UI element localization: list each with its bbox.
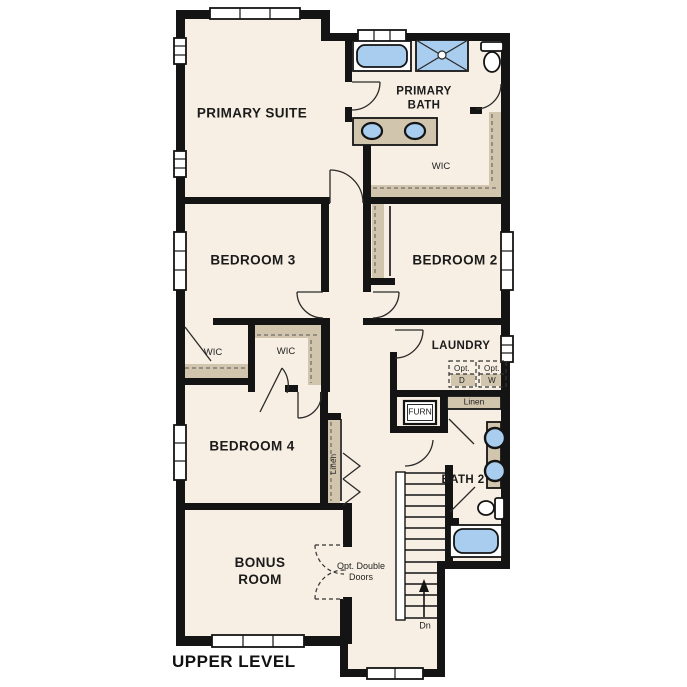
room-label-primary-wic: WIC [432, 161, 450, 173]
annotation-stairs-down: Dn [419, 620, 431, 631]
annotation-linen-hall: Linen [464, 397, 485, 408]
bath2-bathtub [450, 525, 502, 557]
room-label-bath-2: BATH 2 [440, 473, 486, 487]
annotation-opt-washer: Opt. [484, 364, 500, 374]
primary-toilet [481, 42, 503, 72]
primary-bathtub [353, 41, 411, 71]
annotation-opt-dryer: Opt. [454, 364, 470, 374]
room-label-laundry: LAUNDRY [432, 339, 491, 353]
annotation-linen-closet: Linen [329, 454, 339, 475]
room-label-wic-left: WIC [204, 347, 222, 359]
floor-plan: PRIMARY SUITE PRIMARY BATH WIC BEDROOM 3… [0, 0, 687, 687]
room-label-bedroom-3: BEDROOM 3 [210, 253, 295, 270]
annotation-opt-double-doors: Opt. Double Doors [335, 561, 387, 584]
room-label-wic-right: WIC [277, 346, 295, 358]
primary-vanity-sinks [353, 118, 437, 145]
annotation-furnace: FURN [408, 407, 432, 418]
room-label-bedroom-4: BEDROOM 4 [209, 439, 294, 456]
plan-title: UPPER LEVEL [172, 652, 296, 672]
floor-plan-drawing [0, 0, 687, 687]
annotation-dryer-letter: D [459, 376, 465, 386]
primary-shower [416, 40, 468, 71]
room-label-bedroom-2: BEDROOM 2 [412, 253, 497, 270]
annotation-washer-letter: W [488, 376, 496, 386]
room-label-primary-suite: PRIMARY SUITE [192, 106, 312, 123]
room-label-primary-bath: PRIMARY BATH [383, 85, 465, 114]
room-label-bonus-room: BONUS ROOM [214, 555, 306, 589]
